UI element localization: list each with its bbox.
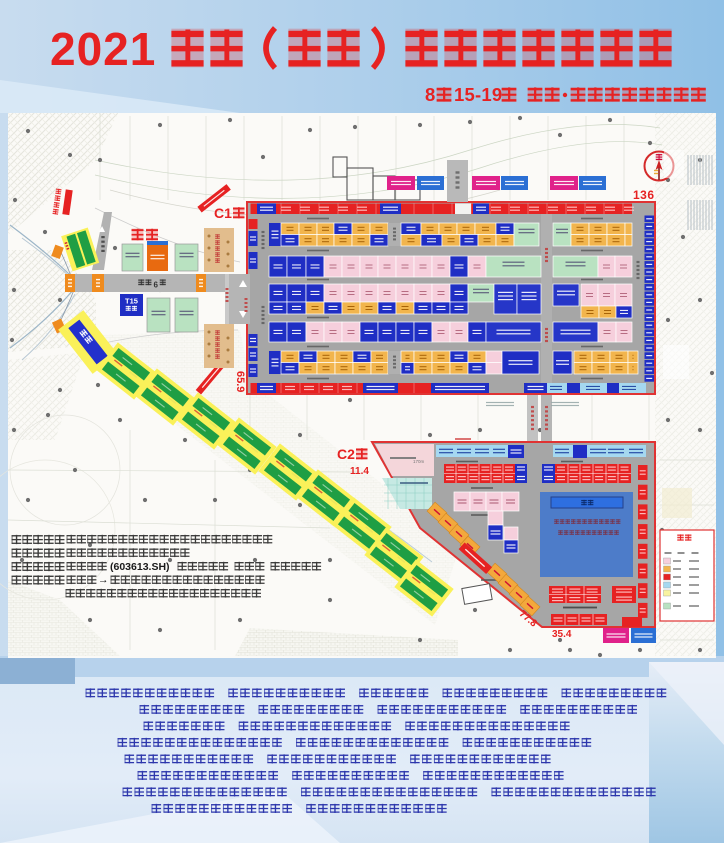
svg-text:C1: C1 [214,205,232,221]
svg-text:65.9: 65.9 [234,371,246,392]
svg-text:C2: C2 [337,446,355,462]
svg-text:136: 136 [633,188,655,202]
svg-text:8: 8 [425,84,435,105]
svg-text:170m: 170m [413,459,425,464]
svg-text:2021: 2021 [50,23,156,75]
svg-text:6: 6 [154,281,159,290]
svg-text:11.4: 11.4 [350,466,369,477]
svg-text:35.4: 35.4 [552,629,572,640]
svg-text:(603613.SH): (603613.SH) [110,561,170,573]
svg-text:15-19: 15-19 [454,84,502,105]
svg-text:T15: T15 [125,297,138,306]
svg-text:→: → [98,574,109,586]
